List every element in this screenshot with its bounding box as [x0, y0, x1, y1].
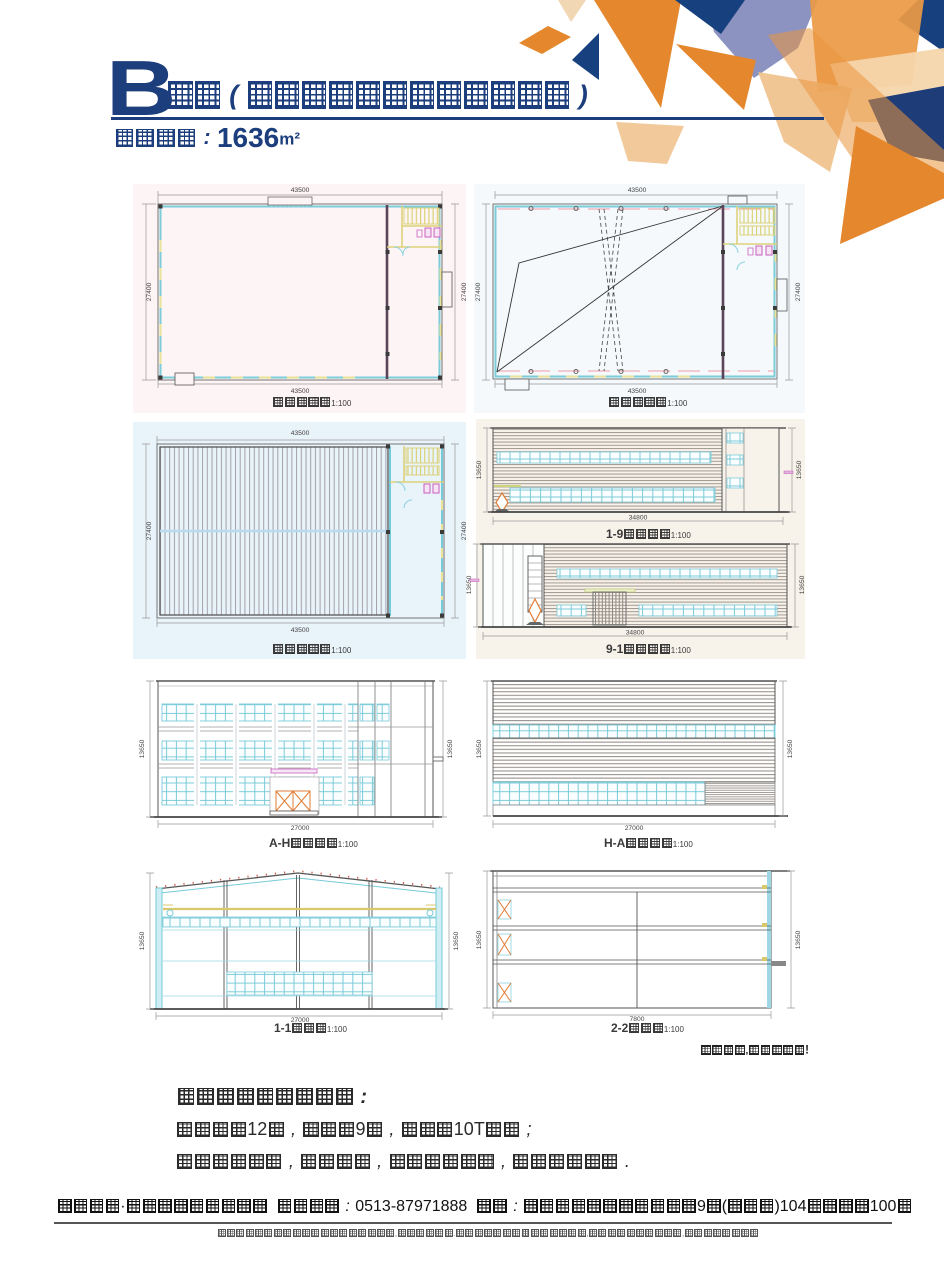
svg-text:43500: 43500	[291, 388, 310, 395]
svg-text:27400: 27400	[475, 282, 482, 301]
svg-text:13650: 13650	[799, 575, 806, 594]
svg-text:43500: 43500	[628, 187, 647, 194]
svg-text:27000: 27000	[625, 825, 644, 832]
svg-text:27400: 27400	[146, 282, 153, 301]
svg-text:13650: 13650	[139, 739, 146, 758]
svg-text:43500: 43500	[291, 627, 310, 634]
svg-text:27000: 27000	[291, 825, 310, 832]
svg-text:43500: 43500	[291, 187, 310, 194]
svg-text:13650: 13650	[139, 931, 146, 950]
svg-text:13650: 13650	[447, 739, 454, 758]
svg-text:13650: 13650	[466, 575, 473, 594]
svg-text:43500: 43500	[628, 388, 647, 395]
svg-text:13650: 13650	[476, 460, 483, 479]
svg-text:27400: 27400	[795, 282, 802, 301]
svg-text:13650: 13650	[476, 739, 483, 758]
svg-text:13650: 13650	[796, 460, 803, 479]
svg-text:13650: 13650	[787, 739, 794, 758]
svg-text:43500: 43500	[291, 430, 310, 437]
svg-text:34800: 34800	[629, 515, 648, 522]
svg-text:13650: 13650	[476, 930, 483, 949]
svg-text:27400: 27400	[461, 521, 468, 540]
svg-text:13650: 13650	[453, 931, 460, 950]
svg-text:34800: 34800	[626, 630, 645, 637]
svg-text:27400: 27400	[146, 521, 153, 540]
svg-text:13650: 13650	[795, 930, 802, 949]
svg-text:27400: 27400	[461, 282, 468, 301]
